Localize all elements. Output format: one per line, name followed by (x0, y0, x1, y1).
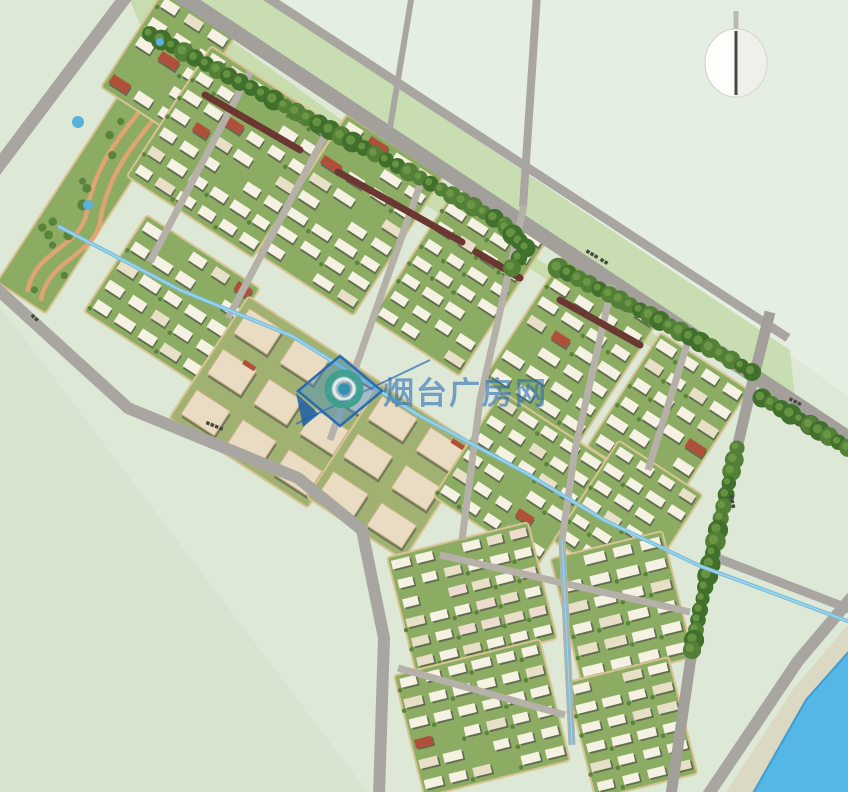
tree-highlight (302, 112, 309, 119)
tree-highlight (718, 501, 725, 508)
logo-core (338, 383, 350, 395)
tree-highlight (795, 414, 801, 420)
tree-highlight (436, 184, 442, 190)
tree-highlight (604, 289, 612, 297)
tree-highlight (833, 437, 840, 444)
tree-highlight (725, 354, 733, 362)
tree-highlight (488, 212, 496, 220)
tree-highlight (513, 252, 520, 259)
pond (156, 38, 164, 46)
tree-highlight (506, 262, 514, 270)
tree-highlight (697, 593, 703, 599)
tree-highlight (732, 443, 739, 450)
tree-highlight (335, 130, 344, 139)
tree-highlight (674, 325, 683, 334)
tree-highlight (715, 513, 722, 520)
tree-highlight (177, 46, 186, 55)
tree-highlight (784, 408, 793, 417)
tree-highlight (467, 200, 476, 209)
tree-highlight (756, 392, 765, 401)
tree-highlight (664, 321, 671, 328)
tree-highlight (189, 52, 197, 60)
tree-highlight (223, 70, 231, 78)
tree-highlight (715, 349, 722, 356)
tree-highlight (392, 160, 399, 167)
tree-highlight (692, 614, 699, 621)
tree-highlight (699, 581, 706, 588)
tree-highlight (823, 430, 831, 438)
tree-highlight (720, 489, 728, 497)
tree-highlight (728, 453, 736, 461)
tree-highlight (446, 189, 454, 197)
tree-highlight (167, 40, 174, 47)
tree-highlight (634, 305, 641, 312)
tree-highlight (246, 82, 253, 89)
tree-highlight (625, 300, 632, 307)
watermark-text: 烟台广房网 (383, 376, 548, 412)
tree-highlight (323, 123, 332, 132)
tree-highlight (425, 178, 432, 185)
pond (72, 116, 84, 128)
tree-highlight (234, 76, 242, 84)
pond (83, 200, 93, 210)
tree-highlight (573, 273, 581, 281)
tree-highlight (415, 173, 422, 180)
tree-highlight (257, 88, 264, 95)
tree-highlight (201, 58, 208, 65)
tree-highlight (562, 267, 570, 275)
tree-highlight (725, 465, 733, 473)
tree-highlight (280, 101, 287, 108)
tree-highlight (724, 478, 731, 485)
tree-highlight (594, 284, 601, 291)
tree-highlight (457, 195, 465, 203)
tree-highlight (267, 93, 276, 102)
tree-highlight (704, 342, 713, 351)
tree-highlight (358, 142, 365, 149)
tree-highlight (736, 361, 743, 368)
tree-highlight (707, 547, 714, 554)
tree-highlight (693, 335, 702, 344)
tree-highlight (654, 314, 663, 323)
site-plan-map: ▪▪▪ ▪▪▪▪▪▪▪▪▪▪▪▪▪▪ 烟台广房网 (0, 0, 848, 792)
tree-highlight (312, 118, 321, 127)
tree-highlight (346, 135, 355, 144)
tree-highlight (478, 207, 485, 214)
tree-highlight (614, 294, 622, 302)
tree-highlight (813, 424, 822, 433)
compass-stem (734, 11, 739, 30)
tree-highlight (694, 604, 701, 611)
tree-highlight (686, 644, 694, 652)
tree-highlight (520, 242, 527, 249)
tree-highlight (709, 535, 718, 544)
tree-highlight (144, 28, 151, 35)
tree-highlight (402, 166, 411, 175)
tree-highlight (583, 278, 591, 286)
tree-highlight (746, 366, 754, 374)
tree-highlight (551, 261, 560, 270)
tree-highlight (766, 398, 773, 405)
tree-highlight (381, 155, 388, 162)
tree-highlight (369, 148, 376, 155)
tree-highlight (290, 106, 298, 114)
tree-highlight (211, 64, 219, 72)
